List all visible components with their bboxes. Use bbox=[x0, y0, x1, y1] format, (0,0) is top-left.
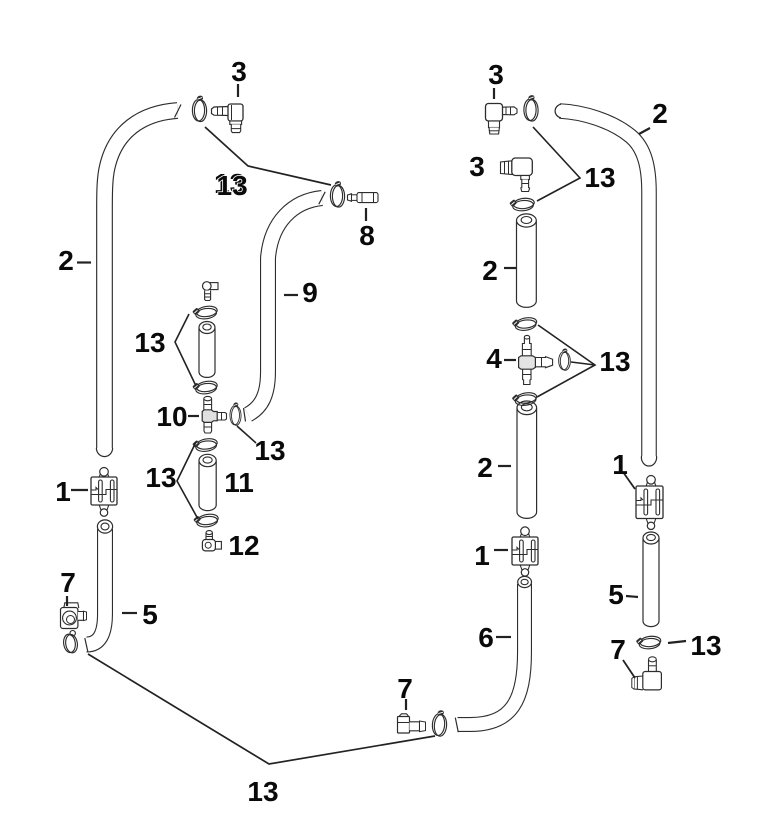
svg-text:13: 13 bbox=[217, 170, 248, 201]
svg-text:13: 13 bbox=[584, 162, 615, 193]
svg-text:2: 2 bbox=[652, 98, 668, 129]
svg-text:2: 2 bbox=[482, 255, 498, 286]
svg-text:13: 13 bbox=[599, 346, 630, 377]
svg-text:2: 2 bbox=[58, 245, 74, 276]
svg-text:1: 1 bbox=[612, 449, 628, 480]
svg-text:10: 10 bbox=[156, 401, 187, 432]
svg-text:12: 12 bbox=[228, 530, 259, 561]
svg-text:1: 1 bbox=[55, 476, 71, 507]
svg-text:11: 11 bbox=[224, 467, 254, 498]
svg-text:2: 2 bbox=[477, 452, 493, 483]
svg-text:3: 3 bbox=[488, 59, 504, 90]
svg-text:6: 6 bbox=[478, 622, 494, 653]
svg-text:9: 9 bbox=[302, 277, 318, 308]
svg-text:1: 1 bbox=[474, 540, 490, 571]
svg-text:13: 13 bbox=[134, 327, 165, 358]
svg-text:3: 3 bbox=[231, 56, 247, 87]
svg-text:13: 13 bbox=[254, 435, 285, 466]
svg-text:5: 5 bbox=[608, 579, 624, 610]
svg-text:13: 13 bbox=[690, 630, 721, 661]
svg-text:13: 13 bbox=[145, 462, 176, 493]
svg-text:5: 5 bbox=[142, 599, 158, 630]
svg-text:7: 7 bbox=[610, 634, 626, 665]
svg-text:13: 13 bbox=[247, 776, 278, 807]
svg-text:3: 3 bbox=[469, 151, 485, 182]
svg-text:4: 4 bbox=[486, 343, 502, 374]
svg-text:8: 8 bbox=[359, 220, 375, 251]
svg-text:7: 7 bbox=[397, 673, 413, 704]
svg-text:7: 7 bbox=[60, 567, 76, 598]
